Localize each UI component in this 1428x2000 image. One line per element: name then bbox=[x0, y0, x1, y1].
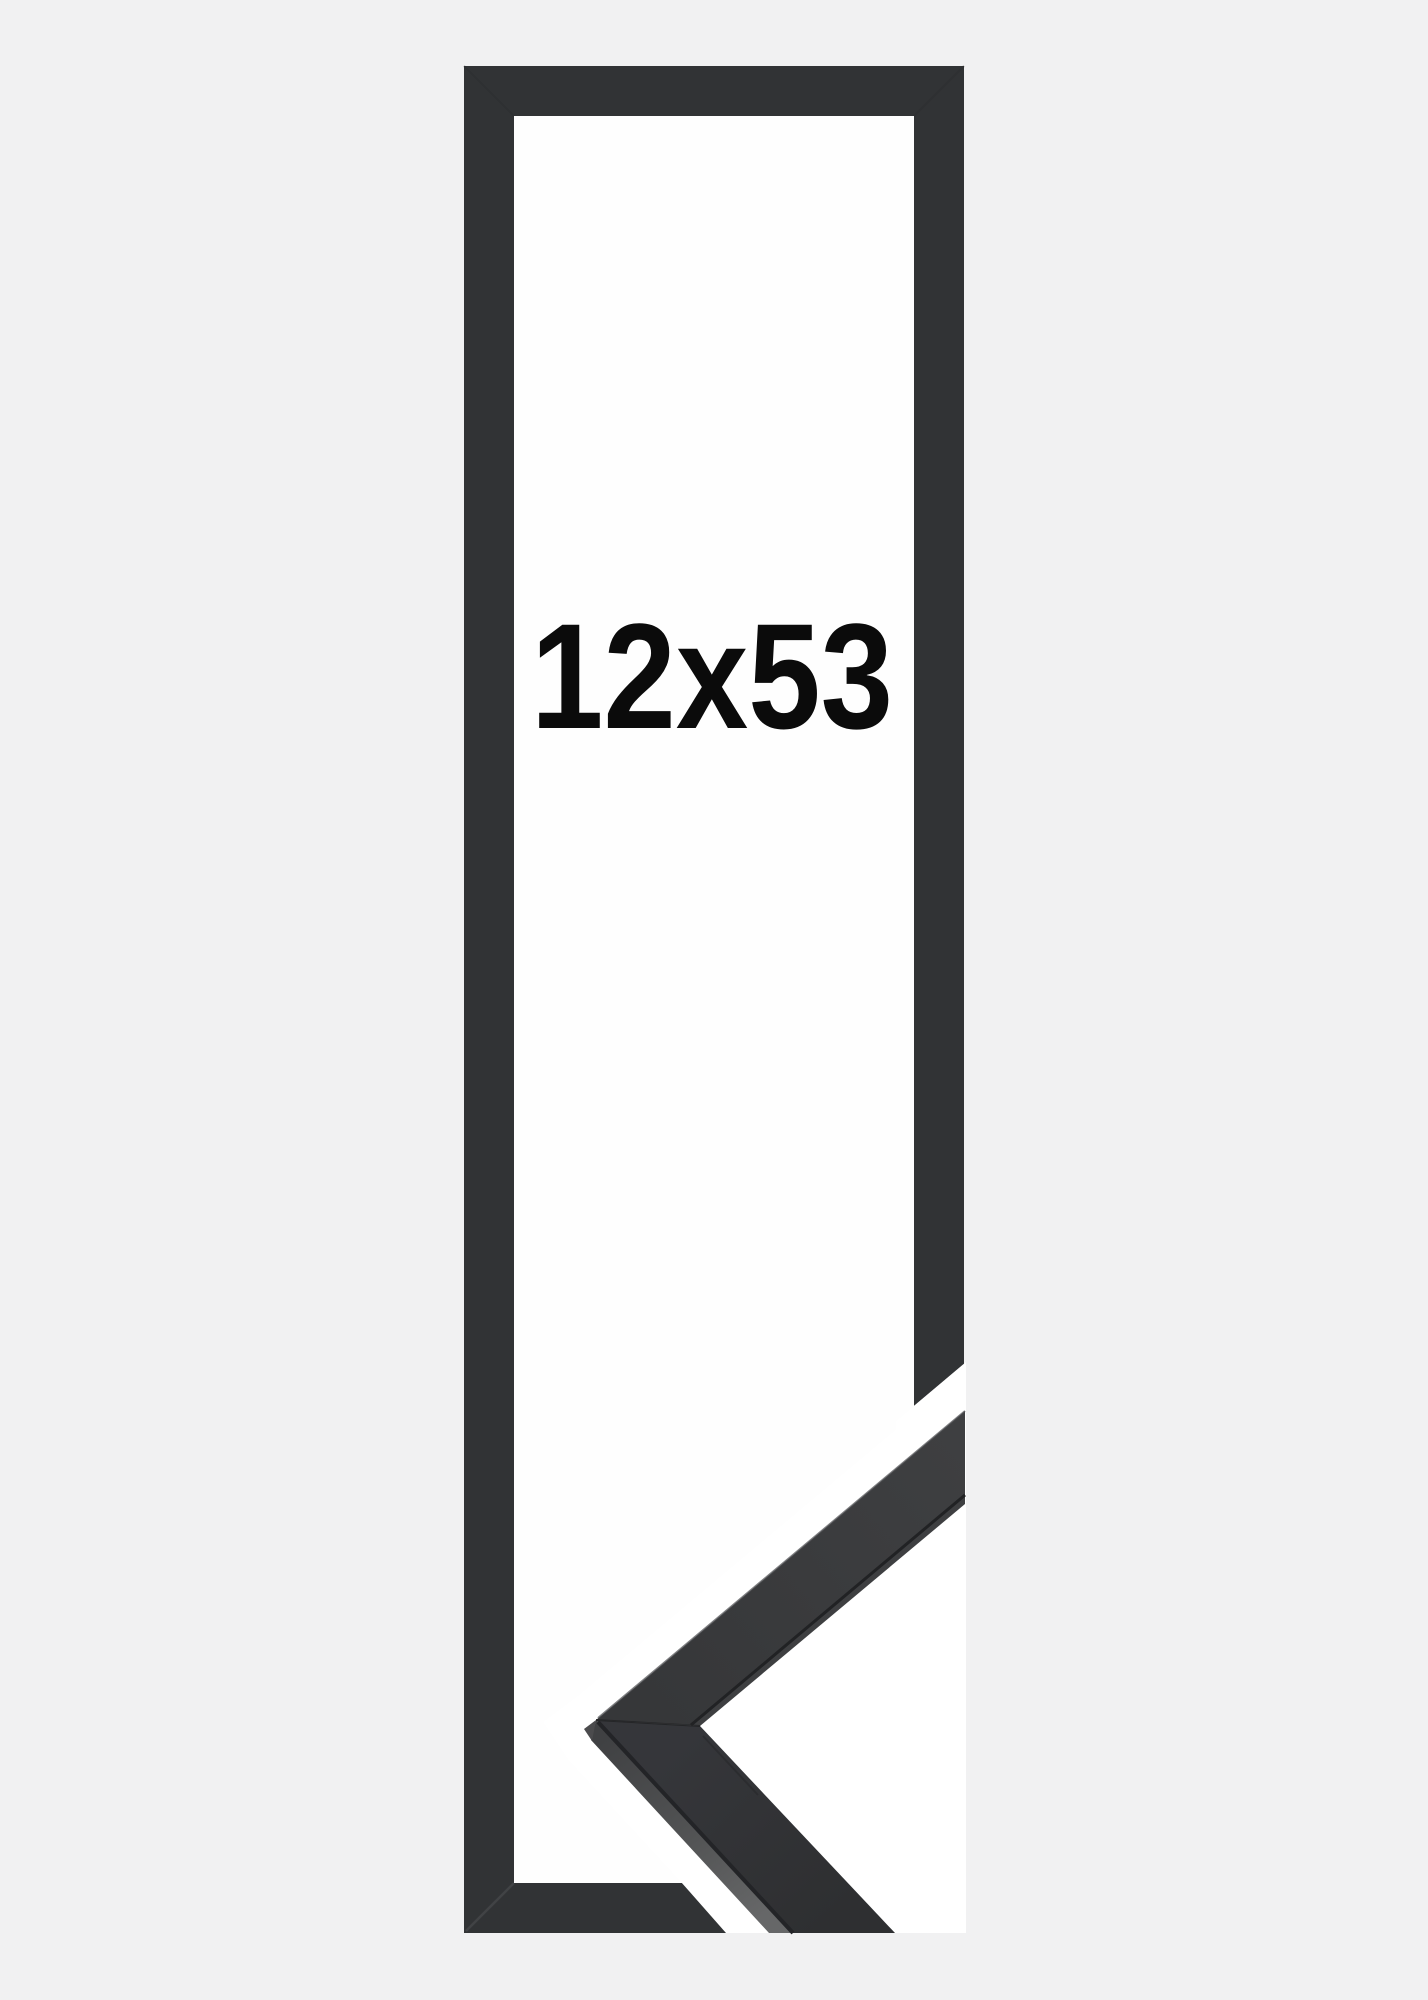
svg-text:12x53: 12x53 bbox=[531, 592, 893, 760]
